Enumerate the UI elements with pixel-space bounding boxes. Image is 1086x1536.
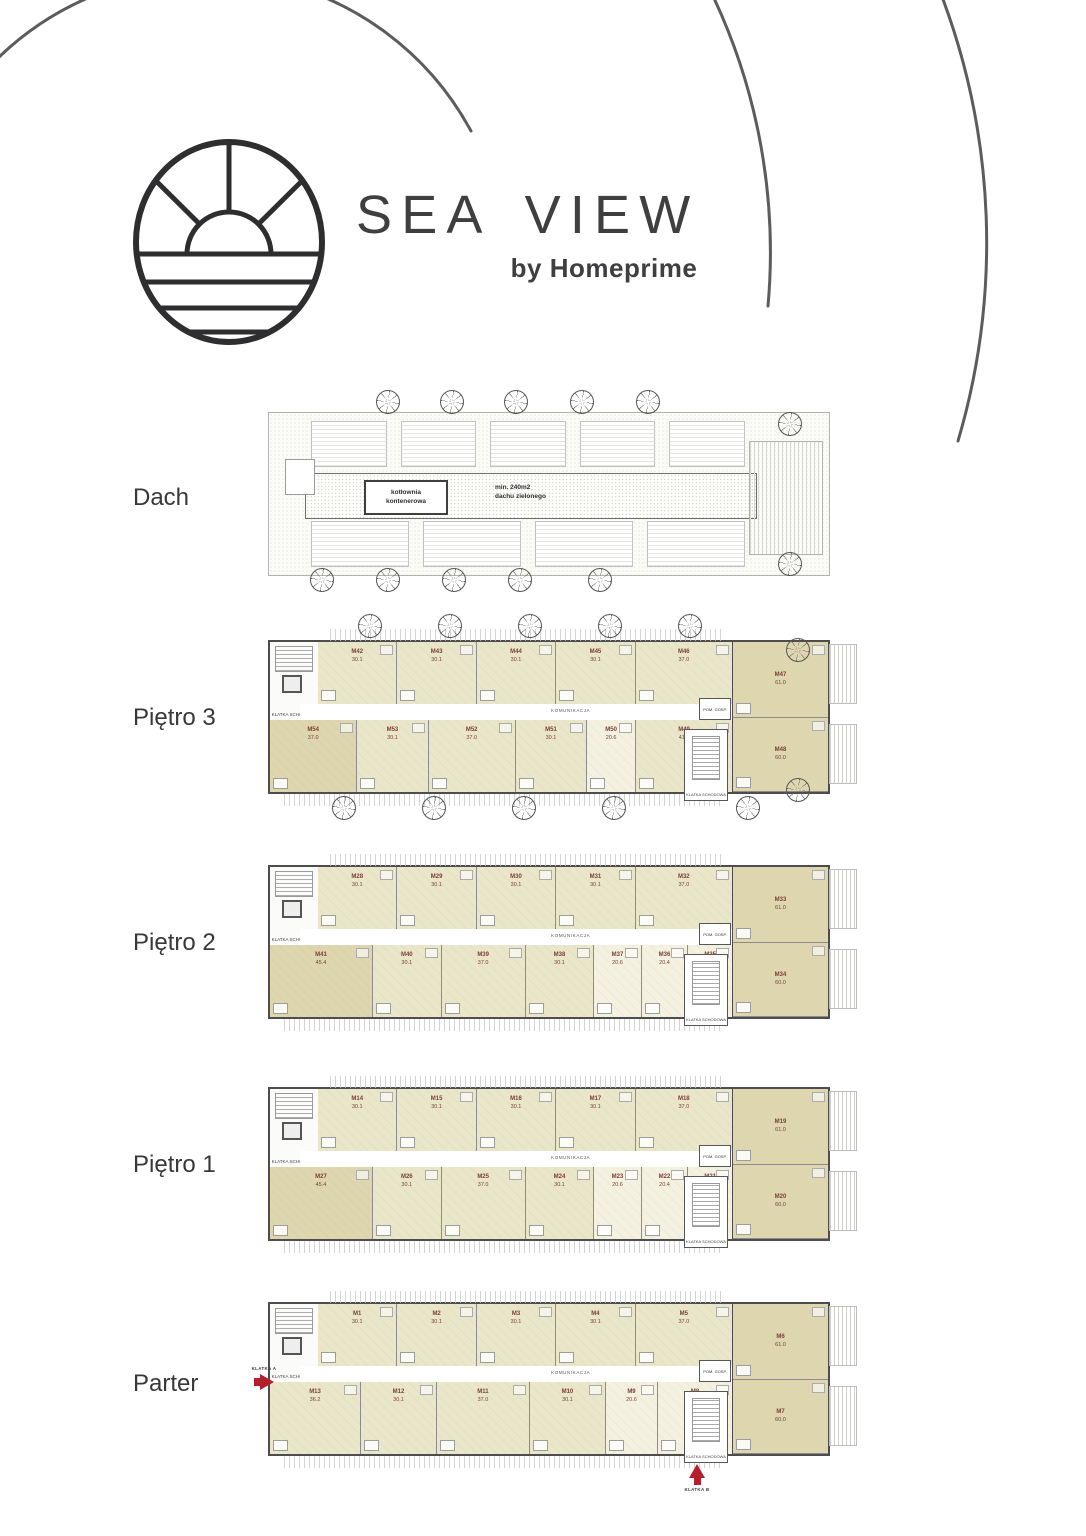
apartment-id: M52 — [466, 727, 478, 735]
apartment-id: M38 — [554, 952, 566, 960]
units-row-top: M42 30.1 M43 30.1 M44 30.1 M45 30.1 — [318, 642, 733, 705]
roof-outline: kotłownia kontenerowa min. 240m2 dachu z… — [268, 412, 830, 576]
apartment-unit: M33 61.0 — [733, 867, 828, 943]
apartment-area: 20.6 — [626, 1397, 637, 1404]
roof-stair-bulkhead — [285, 459, 315, 495]
spiral-stair-icon — [440, 390, 464, 414]
apartment-area: 20.4 — [659, 1182, 670, 1189]
spiral-stair-icon — [636, 390, 660, 414]
units-row-bottom: M54 37.0 M53 30.1 M52 37.0 M51 30.1 — [270, 720, 733, 792]
apartment-area: 61.0 — [775, 905, 786, 912]
apartment-area: 30.1 — [511, 882, 522, 889]
apartment-id: M23 — [612, 1174, 624, 1182]
spiral-stair-icon — [332, 796, 356, 820]
spiral-stair-icon — [438, 614, 462, 638]
spiral-stair-icon — [310, 568, 334, 592]
apartment-id: M3 — [512, 1311, 520, 1319]
apartment-id: M12 — [393, 1389, 405, 1397]
boiler-room-box: kotłownia kontenerowa — [364, 480, 448, 515]
apartment-unit: M34 60.0 — [733, 943, 828, 1017]
floor-label-pietro3: Piętro 3 — [133, 704, 216, 732]
spiral-stair-icon — [736, 796, 760, 820]
apartment-area: 30.1 — [431, 657, 442, 664]
floor-label-pietro1: Piętro 1 — [133, 1151, 216, 1179]
spiral-stair-icon — [570, 390, 594, 414]
apartment-area: 20.6 — [612, 1182, 623, 1189]
units-col-right: M19 61.0 M20 60.0 — [732, 1089, 828, 1239]
apartment-id: M1 — [353, 1311, 361, 1319]
apartment-area: 30.1 — [352, 1319, 363, 1326]
spiral-stair-icon — [422, 796, 446, 820]
apartment-area: 30.1 — [401, 1182, 412, 1189]
spiral-stair-icon — [508, 568, 532, 592]
apartment-area: 30.1 — [352, 1104, 363, 1111]
stairwell-core-right: KLATKA SCHODOWA — [684, 954, 728, 1026]
apartment-id: M44 — [510, 649, 522, 657]
entrance-arrow-right-icon — [260, 1374, 274, 1390]
elevator-icon — [282, 1122, 302, 1140]
apartment-area: 20.4 — [659, 960, 670, 967]
green-roof-area: kotłownia kontenerowa min. 240m2 dachu z… — [305, 473, 757, 519]
balcony-band-bottom — [284, 1241, 723, 1253]
building-outline: KLATKA SCHODOWA M42 30.1 M43 30.1 M44 30… — [268, 640, 830, 794]
apartment-unit: M45 30.1 — [556, 642, 635, 704]
apartment-area: 37.0 — [478, 1182, 489, 1189]
apartment-id: M47 — [775, 672, 787, 680]
spiral-stair-icon — [518, 614, 542, 638]
apartment-unit: M14 30.1 — [318, 1089, 397, 1151]
spiral-stair-icon — [778, 552, 802, 576]
apartment-unit: M40 30.1 — [373, 945, 442, 1017]
green-roof-label: min. 240m2 dachu zielonego — [495, 483, 546, 501]
apartment-area: 37.0 — [478, 1397, 489, 1404]
apartment-id: M13 — [309, 1389, 321, 1397]
apartment-area: 60.0 — [775, 1202, 786, 1209]
apartment-area: 30.1 — [352, 657, 363, 664]
apartment-area: 45.4 — [316, 1182, 327, 1189]
floor-label-parter: Parter — [133, 1370, 198, 1398]
apartment-unit: M15 30.1 — [397, 1089, 476, 1151]
units-row-bottom: M41 45.4 M40 30.1 M39 37.0 M38 30.1 — [270, 945, 733, 1017]
apartment-unit: M47 61.0 — [733, 642, 828, 718]
spiral-stair-icon — [778, 412, 802, 436]
apartment-area: 60.0 — [775, 980, 786, 987]
apartment-area: 30.1 — [511, 657, 522, 664]
entrance-a-label: KLATKA A — [244, 1366, 284, 1371]
terrace-right-bottom — [829, 949, 857, 1009]
apartment-unit: M43 30.1 — [397, 642, 476, 704]
apartment-unit: M10 30.1 — [530, 1382, 606, 1454]
terrace-right-top — [829, 1091, 857, 1151]
spiral-stair-icon — [442, 568, 466, 592]
balcony-band-bottom — [284, 1019, 723, 1031]
apartment-unit: M5 37.0 — [636, 1304, 733, 1366]
apartment-id: M43 — [431, 649, 443, 657]
spiral-stair-icon — [358, 614, 382, 638]
floor-row-pietro1: Piętro 1 KLATKA SCHODOWA M14 30.1 M15 30… — [0, 1067, 1086, 1273]
stairs-icon — [692, 1183, 720, 1227]
stairwell-core-right: KLATKA SCHODOWA — [684, 729, 728, 801]
apartment-id: M29 — [431, 874, 443, 882]
sea-view-logo-icon — [126, 136, 332, 348]
spiral-stair-icon — [376, 390, 400, 414]
spiral-stair-icon — [512, 796, 536, 820]
balcony-band-top — [330, 1076, 723, 1088]
apartment-unit: M30 30.1 — [477, 867, 556, 929]
apartment-area: 30.1 — [554, 1182, 565, 1189]
apartment-id: M54 — [307, 727, 319, 735]
floor-row-pietro2: Piętro 2 KLATKA SCHODOWA M28 30.1 M29 30… — [0, 845, 1086, 1051]
apartment-unit: M44 30.1 — [477, 642, 556, 704]
units-col-right: M6 61.0 M7 60.0 — [732, 1304, 828, 1454]
apartment-area: 30.1 — [401, 960, 412, 967]
apartment-id: M5 — [680, 1311, 688, 1319]
stairwell-core-right: KLATKA SCHODOWA — [684, 1176, 728, 1248]
apartment-id: M37 — [612, 952, 624, 960]
stairs-icon — [692, 1398, 720, 1442]
floor-label-dach: Dach — [133, 484, 189, 512]
balcony-band-bottom — [284, 1456, 723, 1468]
stairs-icon — [275, 1308, 313, 1334]
pietro1-plan: KLATKA SCHODOWA M14 30.1 M15 30.1 M16 30… — [258, 1067, 878, 1267]
apartment-id: M2 — [432, 1311, 440, 1319]
apartment-area: 61.0 — [775, 1127, 786, 1134]
apartment-id: M50 — [605, 727, 617, 735]
roof-terraces-top — [311, 421, 745, 467]
apartment-unit: M25 37.0 — [442, 1167, 526, 1239]
apartment-id: M31 — [590, 874, 602, 882]
balcony-band-top — [330, 1291, 723, 1303]
corridor: KOMUNIKACJA — [300, 704, 733, 721]
apartment-unit: M28 30.1 — [318, 867, 397, 929]
apartment-id: M11 — [477, 1389, 488, 1397]
floor-row-dach: Dach kotłownia kontenerowa min. 240m2 da… — [0, 396, 1086, 614]
apartment-area: 61.0 — [775, 680, 786, 687]
apartment-id: M10 — [562, 1389, 574, 1397]
apartment-area: 30.1 — [554, 960, 565, 967]
apartment-unit: M46 37.0 — [636, 642, 733, 704]
units-col-right: M47 61.0 M48 60.0 — [732, 642, 828, 792]
stairs-icon — [692, 736, 720, 780]
spiral-stair-icon — [598, 614, 622, 638]
apartment-unit: M24 30.1 — [526, 1167, 595, 1239]
apartment-unit: M26 30.1 — [373, 1167, 442, 1239]
apartment-unit: M23 20.6 — [594, 1167, 641, 1239]
terrace-right-bottom — [829, 724, 857, 784]
pietro2-plan: KLATKA SCHODOWA M28 30.1 M29 30.1 M30 30… — [258, 845, 878, 1045]
apartment-id: M22 — [659, 1174, 671, 1182]
apartment-area: 30.1 — [431, 1319, 442, 1326]
apartment-unit: M37 20.6 — [594, 945, 641, 1017]
apartment-area: 60.0 — [775, 1417, 786, 1424]
apartment-id: M14 — [351, 1096, 363, 1104]
apartment-id: M51 — [545, 727, 557, 735]
apartment-id: M53 — [387, 727, 399, 735]
apartment-unit: M38 30.1 — [526, 945, 595, 1017]
terrace-right-bottom — [829, 1386, 857, 1446]
apartment-id: M15 — [431, 1096, 443, 1104]
apartment-unit: M51 30.1 — [516, 720, 587, 792]
apartment-unit: M6 61.0 — [733, 1304, 828, 1380]
units-row-bottom: M13 36.2 M12 30.1 M11 37.0 M10 30.1 — [270, 1382, 733, 1454]
utility-room: POM. GOSP. — [699, 1145, 731, 1167]
apartment-area: 30.1 — [546, 735, 557, 742]
apartment-unit: M41 45.4 — [270, 945, 373, 1017]
apartment-area: 37.0 — [678, 1319, 689, 1326]
apartment-area: 30.1 — [393, 1397, 404, 1404]
stairwell-core-right: KLATKA SCHODOWA — [684, 1391, 728, 1463]
corridor: KOMUNIKACJA — [300, 929, 733, 946]
entrance-arrow-up-icon — [689, 1464, 705, 1478]
apartment-unit: M7 60.0 — [733, 1380, 828, 1454]
apartment-id: M34 — [775, 972, 787, 980]
apartment-id: M17 — [590, 1096, 602, 1104]
spiral-stair-icon — [602, 796, 626, 820]
apartment-id: M19 — [775, 1119, 787, 1127]
apartment-unit: M2 30.1 — [397, 1304, 476, 1366]
apartment-unit: M29 30.1 — [397, 867, 476, 929]
apartment-unit: M22 20.4 — [642, 1167, 689, 1239]
building-outline: KLATKA SCHODOWA M14 30.1 M15 30.1 M16 30… — [268, 1087, 830, 1241]
apartment-id: M33 — [775, 897, 787, 905]
apartment-id: M41 — [315, 952, 327, 960]
apartment-unit: M3 30.1 — [477, 1304, 556, 1366]
apartment-id: M20 — [775, 1194, 787, 1202]
units-row-bottom: M27 45.4 M26 30.1 M25 37.0 M24 30.1 — [270, 1167, 733, 1239]
apartment-id: M26 — [401, 1174, 413, 1182]
apartment-area: 30.1 — [431, 882, 442, 889]
entrance-b-marker: KLATKA B — [672, 1464, 722, 1492]
apartment-unit: M9 20.6 — [606, 1382, 658, 1454]
roof-plan: kotłownia kontenerowa min. 240m2 dachu z… — [258, 396, 878, 596]
apartment-id: M7 — [776, 1409, 784, 1417]
apartment-unit: M4 30.1 — [556, 1304, 635, 1366]
apartment-area: 20.6 — [612, 960, 623, 967]
apartment-area: 45.4 — [316, 960, 327, 967]
apartment-unit: M36 20.4 — [642, 945, 689, 1017]
apartment-id: M24 — [554, 1174, 566, 1182]
apartment-unit: M19 61.0 — [733, 1089, 828, 1165]
apartment-unit: M1 30.1 — [318, 1304, 397, 1366]
apartment-id: M46 — [678, 649, 690, 657]
apartment-area: 37.0 — [466, 735, 477, 742]
apartment-unit: M11 37.0 — [437, 1382, 530, 1454]
entrance-b-label: KLATKA B — [672, 1487, 722, 1492]
apartment-id: M48 — [775, 747, 787, 755]
apartment-unit: M13 36.2 — [270, 1382, 361, 1454]
apartment-id: M18 — [678, 1096, 690, 1104]
apartment-area: 20.6 — [606, 735, 617, 742]
floor-row-parter: Parter KLATKA SCHODOWA M1 30.1 M2 30.1 — [0, 1282, 1086, 1512]
terrace-right-top — [829, 869, 857, 929]
floor-label-pietro2: Piętro 2 — [133, 929, 216, 957]
utility-room: POM. GOSP. — [699, 923, 731, 945]
stairs-icon — [275, 1093, 313, 1119]
apartment-unit: M17 30.1 — [556, 1089, 635, 1151]
terrace-right-bottom — [829, 1171, 857, 1231]
apartment-area: 30.1 — [590, 882, 601, 889]
building-outline: KLATKA SCHODOWA M1 30.1 M2 30.1 M3 30.1 — [268, 1302, 830, 1456]
pietro3-plan: KLATKA SCHODOWA M42 30.1 M43 30.1 M44 30… — [258, 620, 878, 820]
apartment-id: M36 — [659, 952, 671, 960]
apartment-area: 36.2 — [310, 1397, 321, 1404]
units-row-top: M1 30.1 M2 30.1 M3 30.1 M4 30.1 M5 — [318, 1304, 733, 1367]
apartment-area: 30.1 — [511, 1319, 522, 1326]
apartment-unit: M12 30.1 — [361, 1382, 437, 1454]
terrace-right-top — [829, 1306, 857, 1366]
apartment-area: 30.1 — [590, 1104, 601, 1111]
apartment-id: M4 — [591, 1311, 599, 1319]
apartment-unit: M31 30.1 — [556, 867, 635, 929]
elevator-icon — [282, 1337, 302, 1355]
apartment-unit: M16 30.1 — [477, 1089, 556, 1151]
apartment-area: 37.0 — [678, 1104, 689, 1111]
terrace-right-top — [829, 644, 857, 704]
floorplan-sheet: SEA VIEW by Homeprime Dach kotłownia kon… — [0, 0, 1086, 1536]
spiral-stair-icon — [376, 568, 400, 592]
apartment-id: M39 — [477, 952, 489, 960]
stairs-icon — [692, 961, 720, 1005]
parter-plan: KLATKA SCHODOWA M1 30.1 M2 30.1 M3 30.1 — [258, 1282, 878, 1482]
entrance-a-marker: KLATKA A — [244, 1366, 284, 1390]
apartment-area: 30.1 — [562, 1397, 573, 1404]
apartment-area: 30.1 — [590, 657, 601, 664]
floor-row-pietro3: Piętro 3 KLATKA SCHODOWA M42 30.1 M43 30… — [0, 620, 1086, 832]
apartment-id: M27 — [315, 1174, 327, 1182]
apartment-id: M42 — [351, 649, 363, 657]
apartment-area: 30.1 — [387, 735, 398, 742]
apartment-id: M9 — [627, 1389, 635, 1397]
elevator-icon — [282, 675, 302, 693]
apartment-area: 37.0 — [678, 657, 689, 664]
apartment-area: 30.1 — [511, 1104, 522, 1111]
apartment-unit: M42 30.1 — [318, 642, 397, 704]
utility-room: POM. GOSP. — [699, 698, 731, 720]
apartment-id: M16 — [510, 1096, 522, 1104]
apartment-id: M32 — [678, 874, 690, 882]
utility-room: POM. GOSP. — [699, 1360, 731, 1382]
apartment-id: M25 — [477, 1174, 489, 1182]
apartment-id: M28 — [351, 874, 363, 882]
apartment-unit: M50 20.6 — [587, 720, 636, 792]
apartment-id: M45 — [590, 649, 602, 657]
stairs-icon — [275, 646, 313, 672]
spiral-stair-icon — [678, 614, 702, 638]
apartment-area: 37.0 — [478, 960, 489, 967]
units-row-top: M28 30.1 M29 30.1 M30 30.1 M31 30.1 — [318, 867, 733, 930]
apartment-unit: M52 37.0 — [429, 720, 516, 792]
stairs-icon — [275, 871, 313, 897]
spiral-stair-icon — [786, 638, 810, 662]
apartment-unit: M54 37.0 — [270, 720, 357, 792]
corridor: KOMUNIKACJA — [300, 1366, 733, 1383]
apartment-unit: M32 37.0 — [636, 867, 733, 929]
apartment-area: 30.1 — [431, 1104, 442, 1111]
brand-subtitle: by Homeprime — [356, 253, 697, 284]
apartment-area: 37.0 — [678, 882, 689, 889]
apartment-unit: M18 37.0 — [636, 1089, 733, 1151]
apartment-id: M30 — [510, 874, 522, 882]
brand-title: SEA VIEW — [356, 184, 699, 246]
units-col-right: M33 61.0 M34 60.0 — [732, 867, 828, 1017]
apartment-id: M6 — [776, 1334, 784, 1342]
apartment-unit: M48 60.0 — [733, 718, 828, 792]
apartment-unit: M20 60.0 — [733, 1165, 828, 1239]
apartment-area: 37.0 — [308, 735, 319, 742]
apartment-unit: M27 45.4 — [270, 1167, 373, 1239]
apartment-unit: M39 37.0 — [442, 945, 526, 1017]
apartment-area: 61.0 — [775, 1342, 786, 1349]
roof-terrace-right — [749, 441, 823, 555]
corridor: KOMUNIKACJA — [300, 1151, 733, 1168]
elevator-icon — [282, 900, 302, 918]
apartment-area: 30.1 — [352, 882, 363, 889]
apartment-area: 30.1 — [590, 1319, 601, 1326]
apartment-id: M40 — [401, 952, 413, 960]
balcony-band-top — [330, 854, 723, 866]
spiral-stair-icon — [588, 568, 612, 592]
apartment-area: 60.0 — [775, 755, 786, 762]
building-outline: KLATKA SCHODOWA M28 30.1 M29 30.1 M30 30… — [268, 865, 830, 1019]
roof-terraces-bottom — [311, 521, 745, 567]
units-row-top: M14 30.1 M15 30.1 M16 30.1 M17 30.1 — [318, 1089, 733, 1152]
spiral-stair-icon — [504, 390, 528, 414]
apartment-unit: M53 30.1 — [357, 720, 428, 792]
spiral-stair-icon — [786, 778, 810, 802]
